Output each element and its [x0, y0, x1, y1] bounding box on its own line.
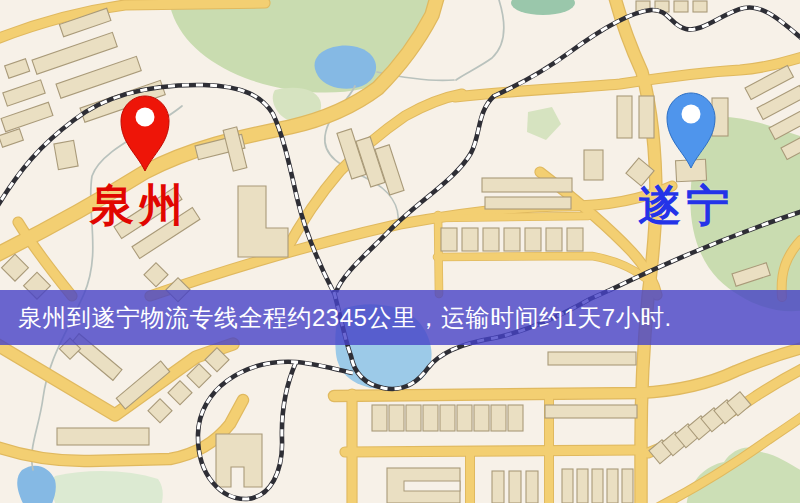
route-info-text: 泉州到遂宁物流专线全程约2345公里，运输时间约1天7小时. — [18, 302, 672, 334]
destination-pin-hole — [682, 105, 701, 124]
origin-pin-hole — [136, 108, 155, 127]
map-viewport[interactable]: 泉州 遂宁 泉州到遂宁物流专线全程约2345公里，运输时间约1天7小时. — [0, 0, 800, 503]
route-info-banner: 泉州到遂宁物流专线全程约2345公里，运输时间约1天7小时. — [0, 290, 800, 345]
origin-city-label: 泉州 — [90, 176, 188, 235]
destination-city-label: 遂宁 — [638, 177, 734, 235]
map-canvas[interactable] — [0, 0, 800, 503]
